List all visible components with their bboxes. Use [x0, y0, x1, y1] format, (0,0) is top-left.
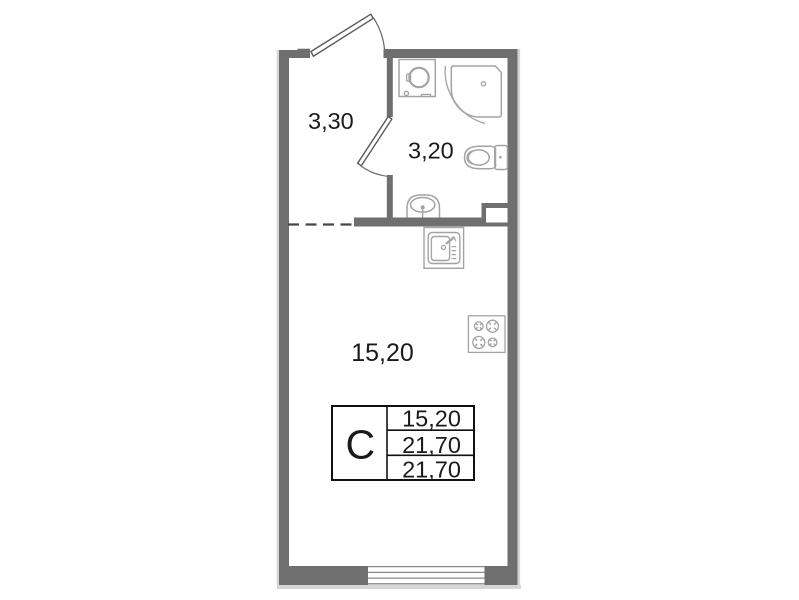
svg-text:3,30: 3,30 — [308, 108, 354, 134]
svg-text:С: С — [345, 421, 375, 467]
svg-text:21,70: 21,70 — [402, 457, 461, 483]
svg-text:3,20: 3,20 — [408, 138, 454, 164]
svg-text:15,20: 15,20 — [402, 406, 461, 432]
svg-text:21,70: 21,70 — [402, 432, 461, 458]
svg-text:15,20: 15,20 — [351, 339, 414, 367]
